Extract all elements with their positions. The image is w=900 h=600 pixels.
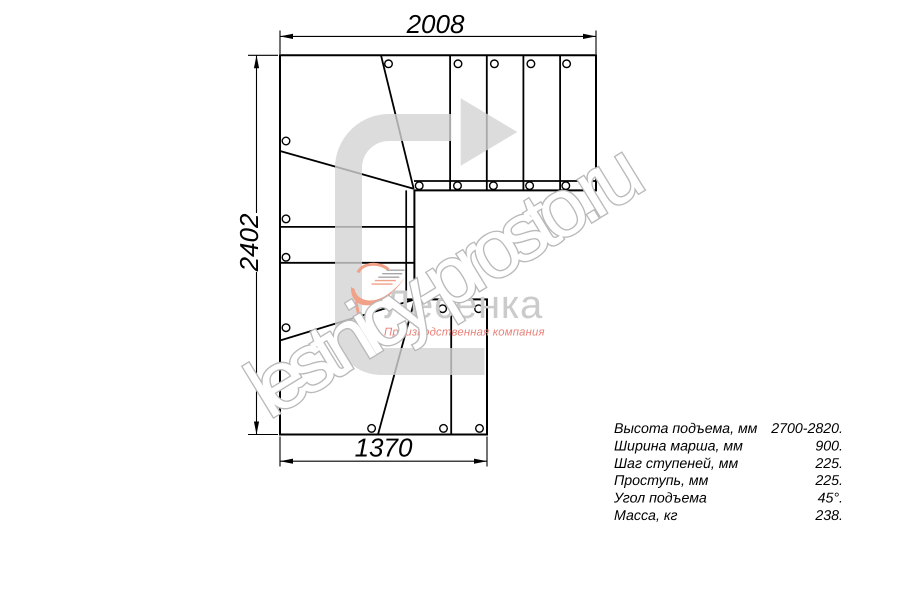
svg-text:Ширина марша, мм: Ширина марша, мм — [614, 438, 743, 454]
svg-text:225.: 225. — [814, 473, 843, 489]
svg-text:Шаг ступеней, мм: Шаг ступеней, мм — [614, 456, 738, 472]
svg-text:1370: 1370 — [355, 433, 413, 463]
svg-text:Высота подъема, мм: Высота подъема, мм — [614, 421, 758, 437]
svg-text:2008: 2008 — [406, 9, 465, 39]
svg-text:900.: 900. — [815, 438, 843, 454]
svg-text:Масса, кг: Масса, кг — [614, 508, 678, 524]
svg-text:225.: 225. — [814, 456, 843, 472]
svg-text:Проступь, мм: Проступь, мм — [614, 473, 709, 489]
svg-text:2402: 2402 — [234, 213, 264, 272]
svg-text:45°.: 45°. — [818, 491, 843, 507]
svg-text:2700-2820.: 2700-2820. — [770, 421, 843, 437]
svg-text:238.: 238. — [814, 508, 843, 524]
svg-text:Угол подъема: Угол подъема — [613, 491, 707, 507]
